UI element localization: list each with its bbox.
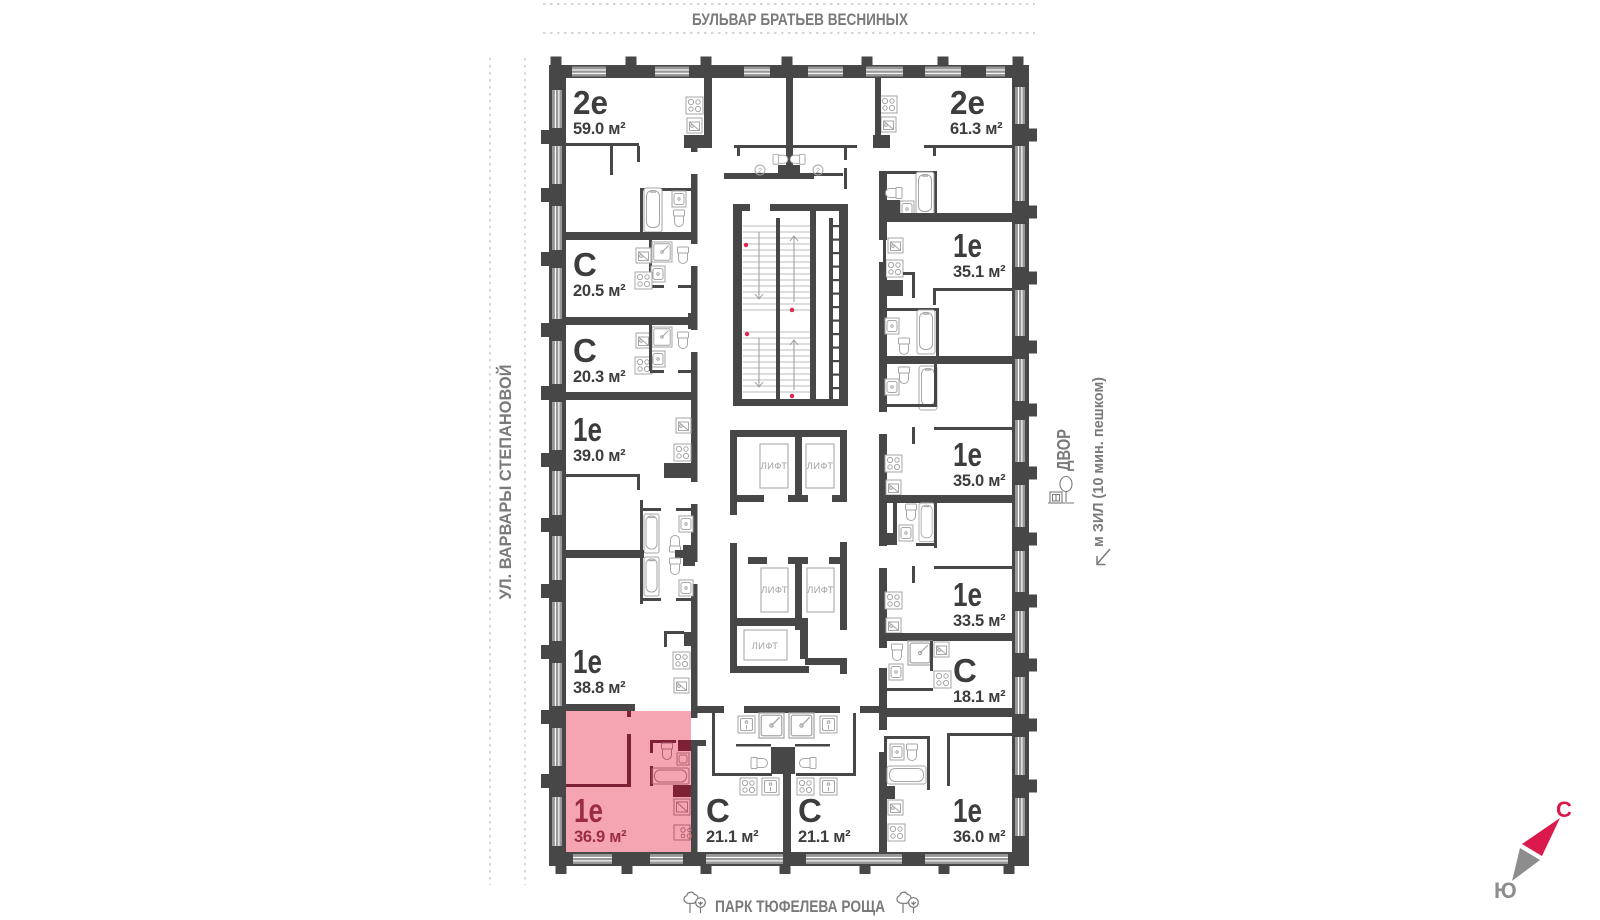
- svg-text:2: 2: [758, 166, 762, 175]
- svg-text:1е: 1е: [953, 576, 982, 613]
- svg-text:ЛИФТ: ЛИФТ: [752, 641, 779, 652]
- svg-text:61.3 м²: 61.3 м²: [950, 120, 1003, 138]
- svg-text:С: С: [953, 652, 977, 689]
- svg-text:ЛИФТ: ЛИФТ: [807, 585, 834, 596]
- svg-text:Ю: Ю: [1494, 878, 1517, 903]
- svg-text:2е: 2е: [950, 84, 985, 121]
- svg-text:20.5 м²: 20.5 м²: [573, 282, 626, 300]
- svg-text:С: С: [706, 792, 730, 829]
- svg-text:1е: 1е: [573, 643, 602, 680]
- svg-text:21.1 м²: 21.1 м²: [706, 828, 759, 846]
- svg-text:21.1 м²: 21.1 м²: [798, 828, 851, 846]
- svg-text:1е: 1е: [573, 411, 602, 448]
- svg-text:2: 2: [816, 166, 820, 175]
- svg-text:ЛИФТ: ЛИФТ: [761, 585, 788, 596]
- svg-text:ЛИФТ: ЛИФТ: [761, 461, 788, 472]
- svg-text:ПАРК ТЮФЕЛЕВА РОЩА: ПАРК ТЮФЕЛЕВА РОЩА: [715, 897, 885, 916]
- svg-text:35.0 м²: 35.0 м²: [953, 472, 1006, 490]
- svg-text:С: С: [573, 332, 597, 369]
- svg-text:2е: 2е: [573, 84, 608, 121]
- svg-text:18.1 м²: 18.1 м²: [953, 688, 1006, 706]
- svg-text:1е: 1е: [953, 436, 982, 473]
- svg-text:1е: 1е: [574, 792, 603, 829]
- svg-text:1е: 1е: [953, 792, 982, 829]
- svg-text:36.0 м²: 36.0 м²: [953, 828, 1006, 846]
- svg-text:35.1 м²: 35.1 м²: [953, 263, 1006, 281]
- svg-text:33.5 м²: 33.5 м²: [953, 612, 1006, 630]
- svg-text:38.8 м²: 38.8 м²: [573, 679, 626, 697]
- svg-text:ДВОР: ДВОР: [1054, 429, 1074, 471]
- svg-text:39.0 м²: 39.0 м²: [573, 447, 626, 465]
- svg-text:ЛИФТ: ЛИФТ: [807, 461, 834, 472]
- svg-text:м ЗИЛ (10 мин. пешком): м ЗИЛ (10 мин. пешком): [1090, 377, 1107, 547]
- svg-text:С: С: [573, 246, 597, 283]
- svg-text:С: С: [1556, 797, 1572, 822]
- svg-text:59.0 м²: 59.0 м²: [573, 120, 626, 138]
- svg-text:БУЛЬВАР БРАТЬЕВ ВЕСНИНЫХ: БУЛЬВАР БРАТЬЕВ ВЕСНИНЫХ: [692, 10, 909, 29]
- svg-text:20.3 м²: 20.3 м²: [573, 368, 626, 386]
- svg-text:УЛ. ВАРВАРЫ СТЕПАНОВОЙ: УЛ. ВАРВАРЫ СТЕПАНОВОЙ: [496, 365, 515, 600]
- svg-text:1е: 1е: [953, 227, 982, 264]
- svg-text:36.9 м²: 36.9 м²: [574, 828, 627, 846]
- svg-text:С: С: [798, 792, 822, 829]
